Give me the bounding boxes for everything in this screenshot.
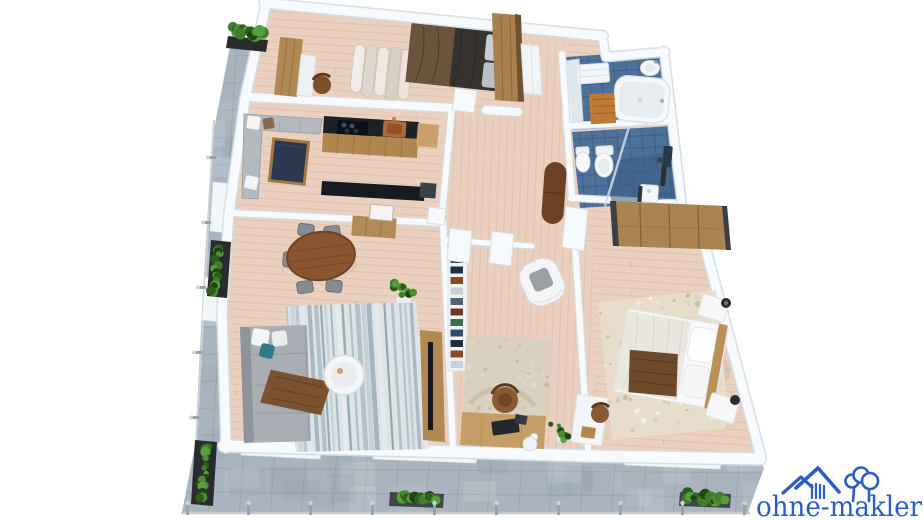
tall-wardrobe bbox=[492, 13, 524, 102]
floor-plan-render: ohne-makler bbox=[0, 0, 924, 520]
brand-logo-text: ohne-makler bbox=[756, 490, 923, 520]
side-table bbox=[523, 437, 537, 451]
desk-chair bbox=[313, 74, 331, 94]
books bbox=[451, 256, 464, 368]
small-sink bbox=[637, 184, 658, 202]
door-leaf bbox=[452, 88, 477, 113]
side-counter bbox=[416, 123, 439, 148]
door-leaf bbox=[447, 228, 472, 263]
bidet bbox=[575, 147, 590, 173]
coffee-table bbox=[324, 355, 364, 395]
door-leaf bbox=[489, 231, 514, 266]
desk-chair bbox=[492, 385, 518, 413]
tv-cabinet bbox=[420, 330, 445, 442]
wardrobe bbox=[610, 201, 731, 250]
door-leaf bbox=[562, 206, 588, 251]
towel-dark bbox=[662, 146, 673, 168]
washbasin bbox=[641, 60, 660, 75]
door-leaf bbox=[427, 207, 446, 225]
bench bbox=[541, 161, 567, 224]
towel bbox=[587, 91, 618, 126]
stove bbox=[337, 120, 369, 136]
nook-table bbox=[268, 137, 310, 186]
toilet bbox=[594, 146, 613, 178]
desk-chair bbox=[591, 403, 609, 423]
bookshelf bbox=[448, 250, 467, 371]
wall-bedroom1-south-stub bbox=[486, 110, 518, 112]
bedside-lamp bbox=[730, 395, 740, 405]
bathtub bbox=[612, 75, 671, 125]
cabinet bbox=[521, 44, 542, 95]
shelf-unit bbox=[577, 63, 609, 84]
brand-logo: ohne-makler bbox=[756, 468, 923, 520]
throw-blanket bbox=[623, 346, 684, 401]
wall-bath-top bbox=[602, 35, 665, 57]
picture-frame bbox=[369, 204, 393, 221]
